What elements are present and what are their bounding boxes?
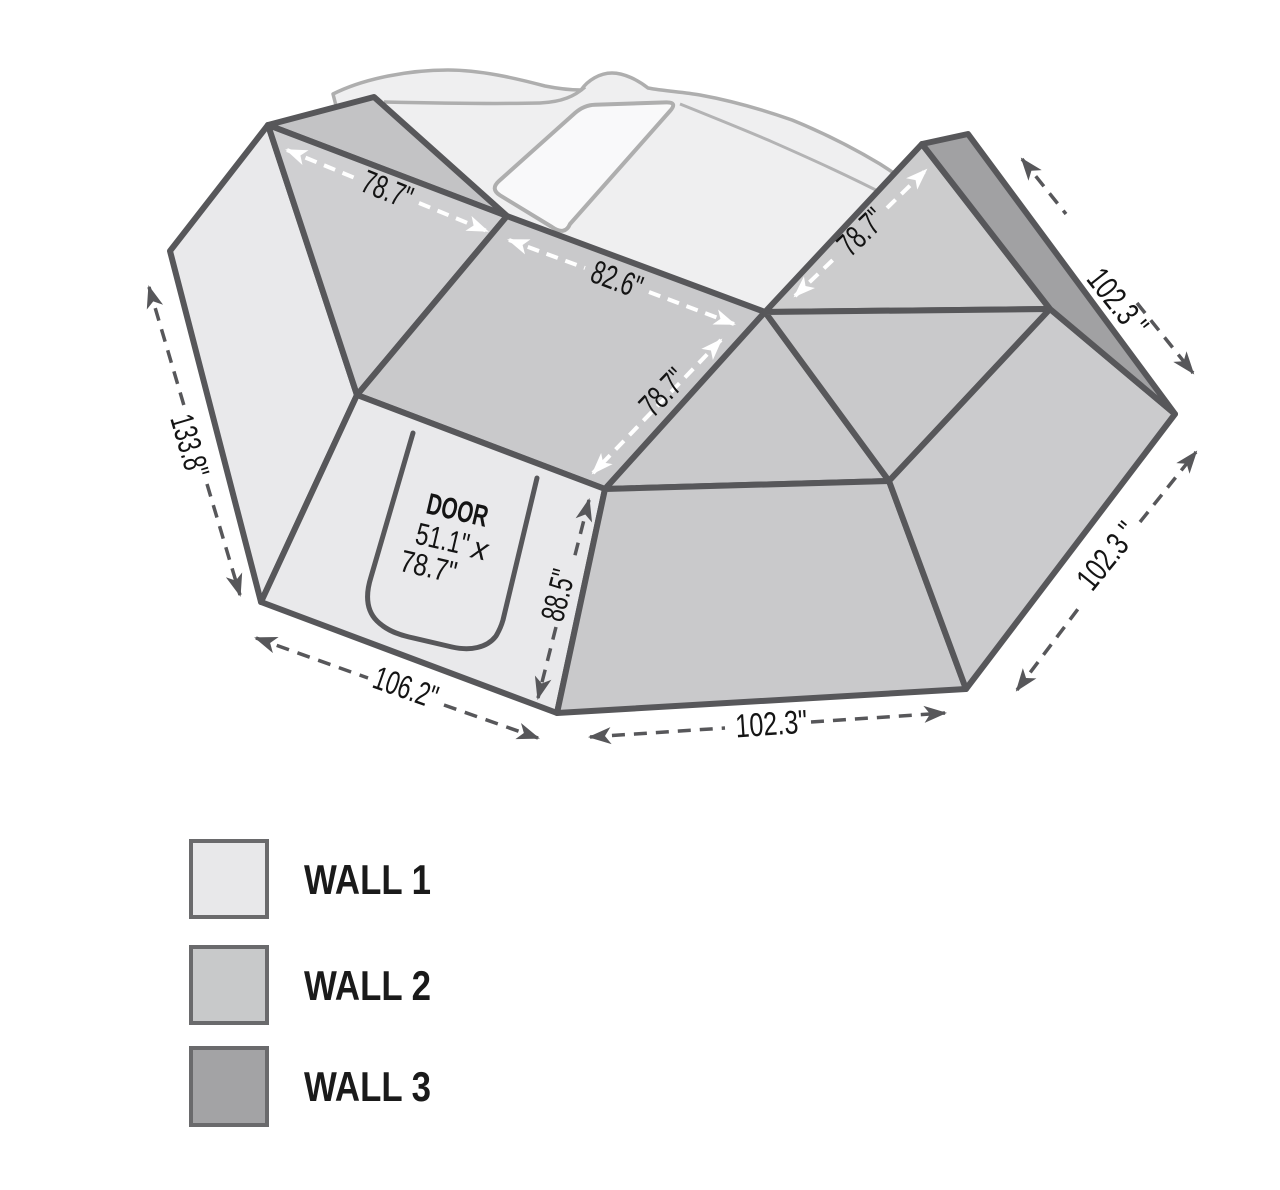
svg-text:133.8": 133.8" bbox=[163, 410, 217, 482]
svg-text:WALL 1: WALL 1 bbox=[304, 856, 431, 903]
svg-text:102.3": 102.3" bbox=[734, 703, 808, 745]
svg-text:WALL 2: WALL 2 bbox=[304, 962, 431, 1009]
svg-text:WALL 3: WALL 3 bbox=[304, 1063, 431, 1110]
